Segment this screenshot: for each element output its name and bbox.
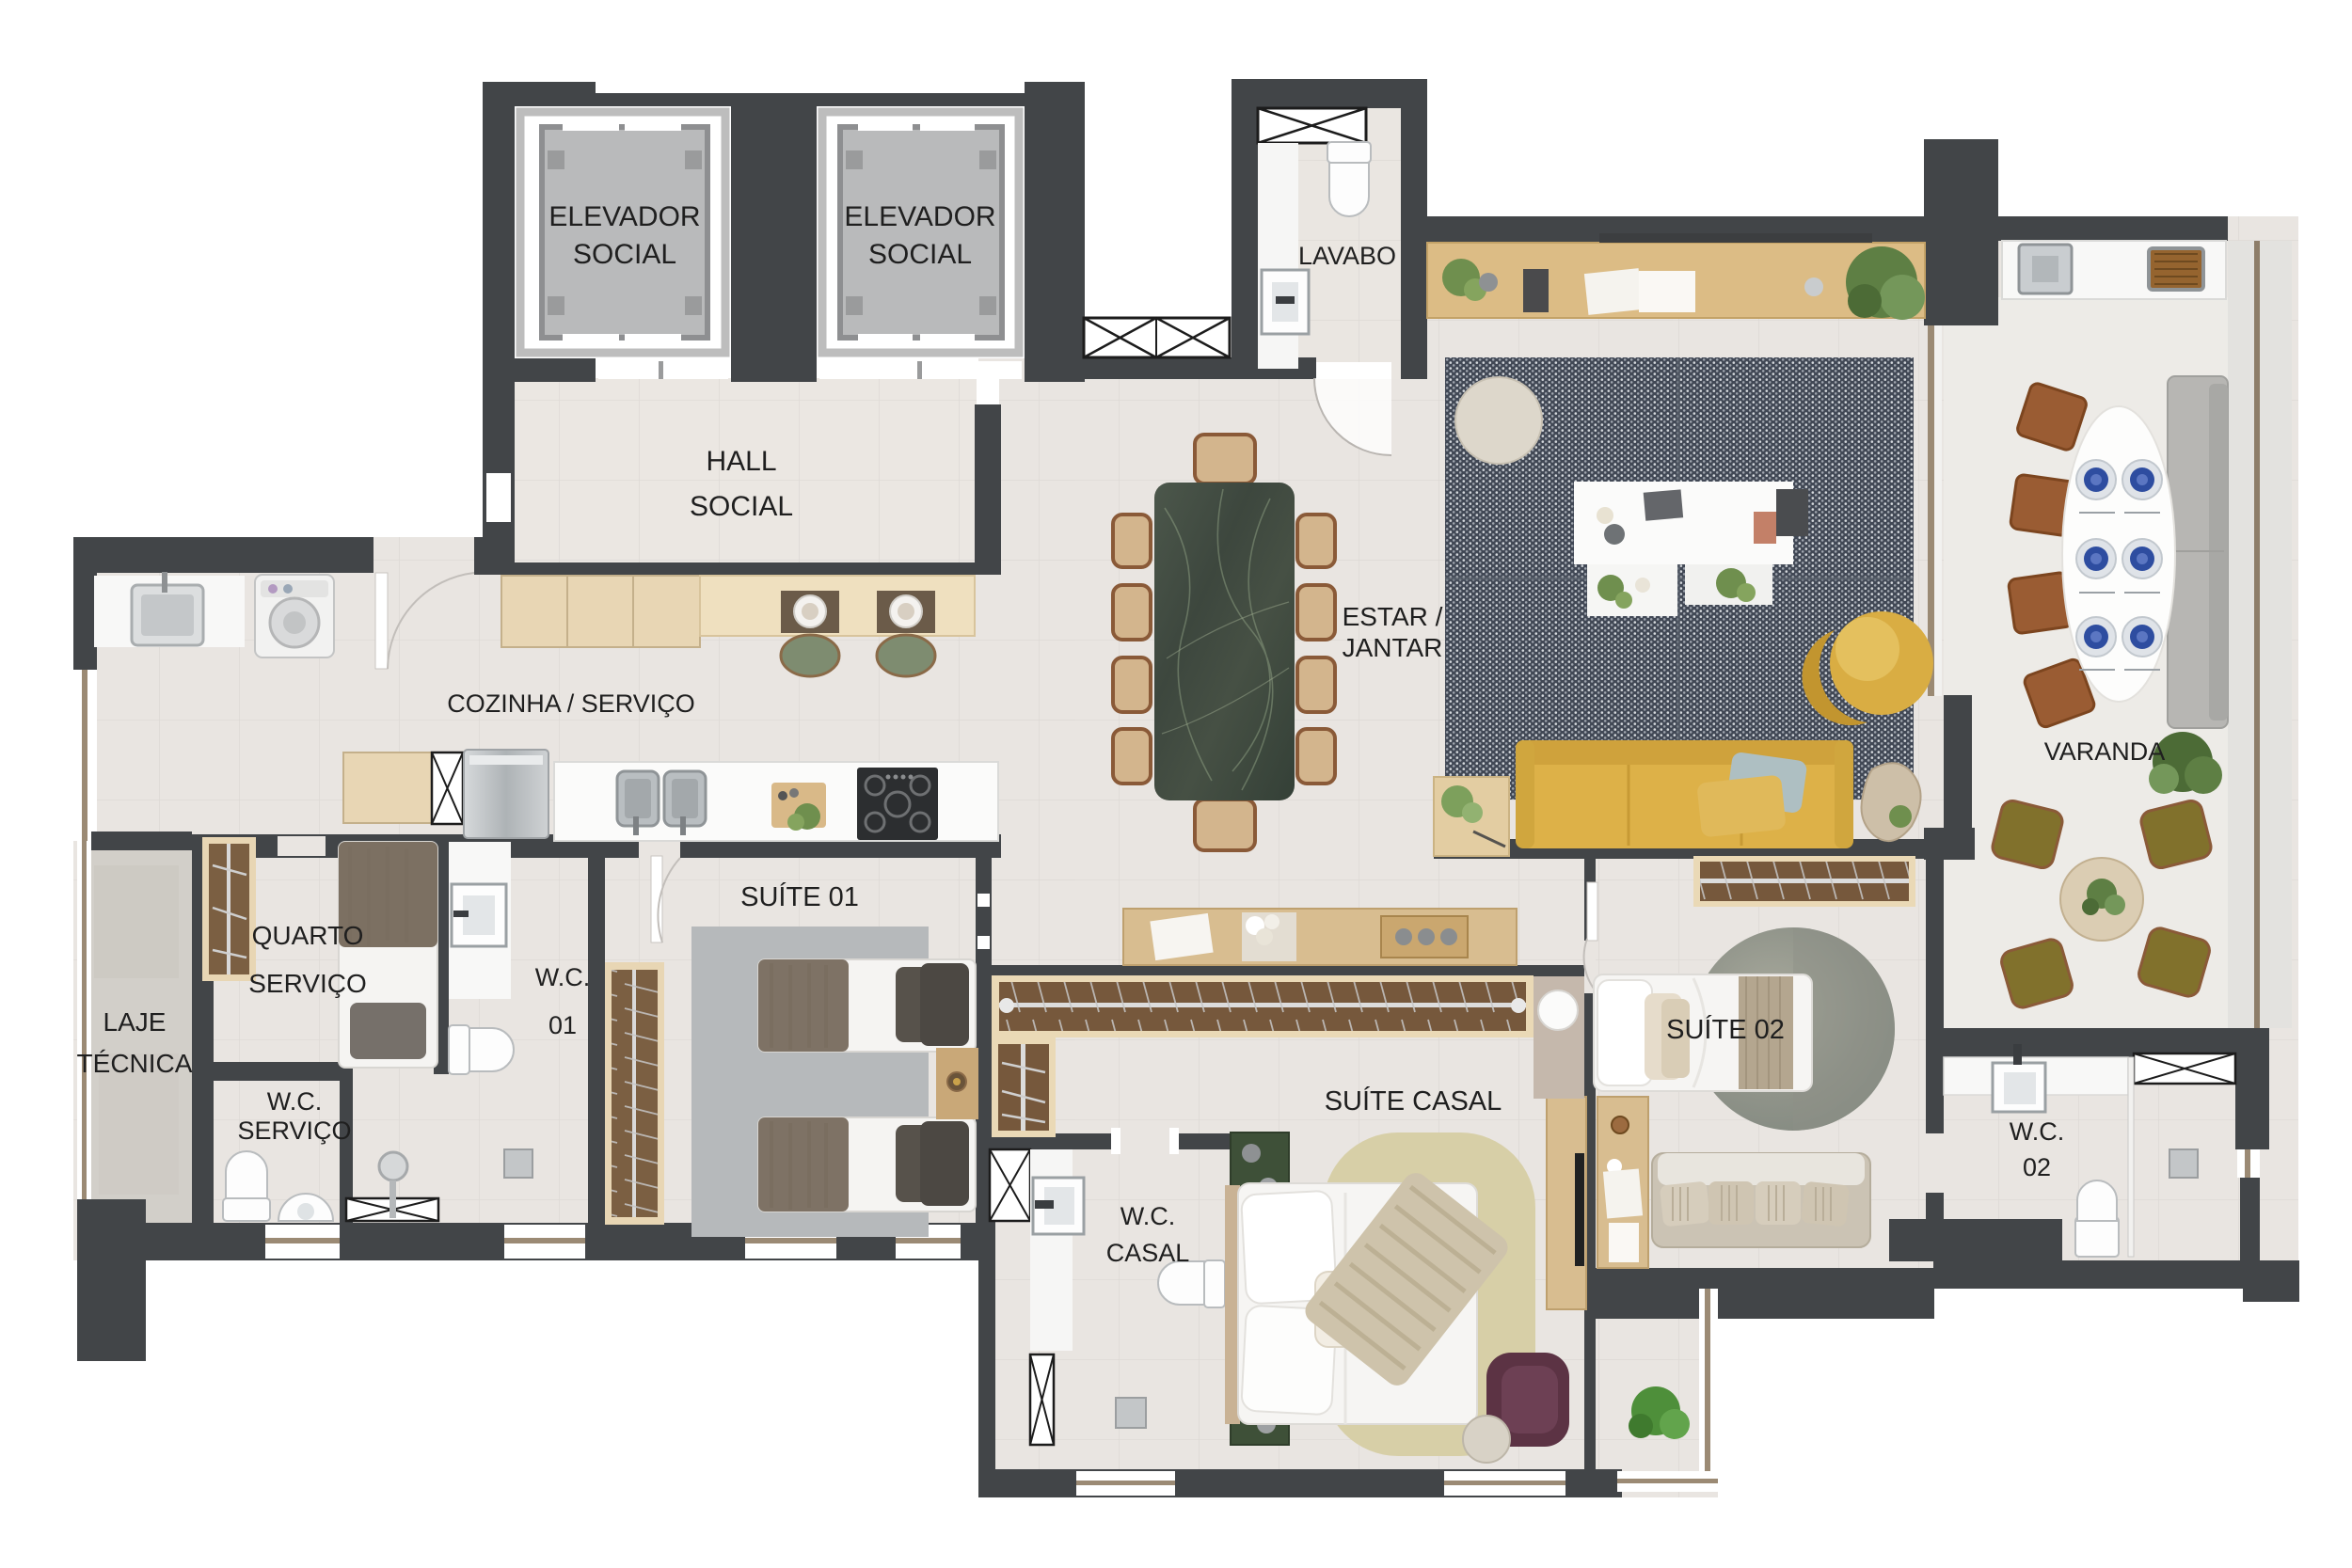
svg-text:SOCIAL: SOCIAL (868, 239, 972, 270)
svg-text:QUARTO: QUARTO (252, 921, 364, 950)
svg-text:W.C.: W.C. (1120, 1202, 1176, 1230)
svg-text:JANTAR: JANTAR (1343, 633, 1443, 662)
svg-text:TÉCNICA: TÉCNICA (77, 1049, 193, 1078)
svg-text:SUÍTE CASAL: SUÍTE CASAL (1325, 1085, 1502, 1117)
svg-text:COZINHA / SERVIÇO: COZINHA / SERVIÇO (447, 689, 695, 718)
svg-text:SERVIÇO: SERVIÇO (237, 1117, 351, 1145)
svg-text:ELEVADOR: ELEVADOR (844, 201, 995, 232)
svg-text:W.C.: W.C. (535, 963, 591, 991)
svg-text:LAJE: LAJE (103, 1007, 167, 1037)
svg-text:LAVABO: LAVABO (1298, 242, 1396, 270)
svg-text:ELEVADOR: ELEVADOR (548, 201, 700, 232)
svg-text:SOCIAL: SOCIAL (573, 239, 676, 270)
svg-text:W.C.: W.C. (267, 1087, 323, 1116)
svg-text:HALL: HALL (706, 446, 776, 477)
svg-text:ESTAR /: ESTAR / (1343, 602, 1443, 631)
svg-text:SUÍTE 01: SUÍTE 01 (740, 881, 859, 912)
svg-text:W.C.: W.C. (2010, 1117, 2065, 1146)
svg-text:SOCIAL: SOCIAL (690, 491, 793, 522)
svg-text:CASAL: CASAL (1106, 1239, 1190, 1267)
svg-text:01: 01 (548, 1011, 577, 1039)
svg-text:02: 02 (2023, 1153, 2051, 1181)
svg-text:SERVIÇO: SERVIÇO (248, 969, 367, 998)
svg-text:VARANDA: VARANDA (2044, 737, 2166, 766)
svg-text:SUÍTE 02: SUÍTE 02 (1666, 1014, 1785, 1045)
